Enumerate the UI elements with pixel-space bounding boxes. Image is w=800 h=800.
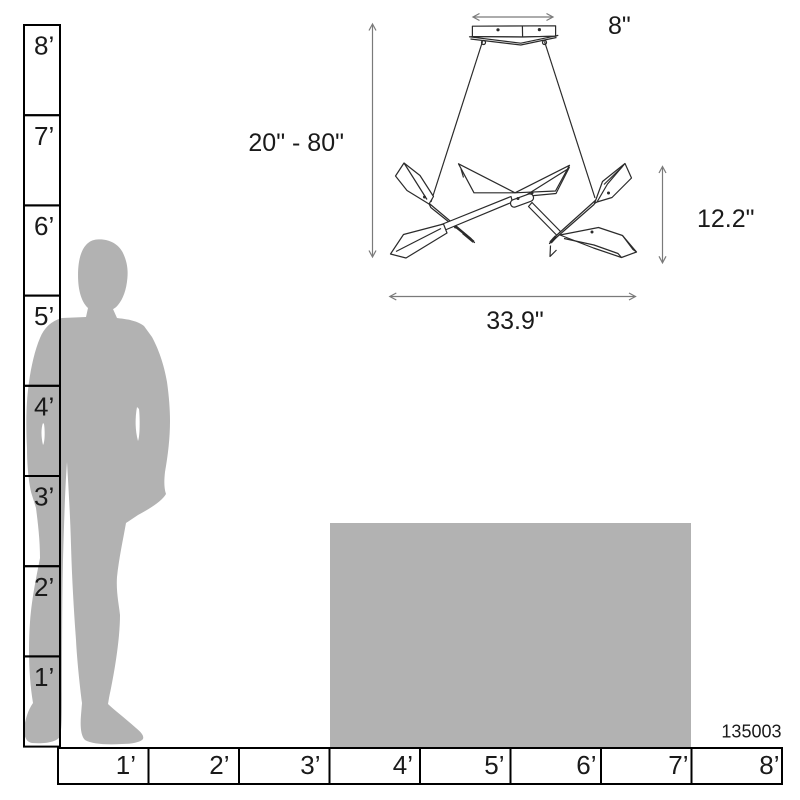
svg-text:1’: 1’ [34,662,54,692]
svg-text:12.2": 12.2" [697,205,755,233]
svg-text:7’: 7’ [34,121,54,151]
svg-text:8’: 8’ [759,750,779,780]
svg-text:5’: 5’ [484,750,504,780]
svg-text:33.9": 33.9" [486,307,544,335]
svg-text:5’: 5’ [34,301,54,331]
svg-text:3’: 3’ [300,750,320,780]
svg-text:2’: 2’ [209,750,229,780]
svg-text:7’: 7’ [668,750,688,780]
svg-text:2’: 2’ [34,572,54,602]
svg-text:8’: 8’ [34,31,54,61]
svg-text:1’: 1’ [116,750,136,780]
svg-text:4’: 4’ [393,750,413,780]
svg-text:4’: 4’ [34,391,54,421]
svg-text:3’: 3’ [34,482,54,512]
svg-text:6’: 6’ [34,211,54,241]
svg-text:6’: 6’ [576,750,596,780]
svg-text:8": 8" [608,12,631,40]
svg-text:20" - 80": 20" - 80" [248,129,344,157]
svg-text:135003: 135003 [721,722,781,742]
